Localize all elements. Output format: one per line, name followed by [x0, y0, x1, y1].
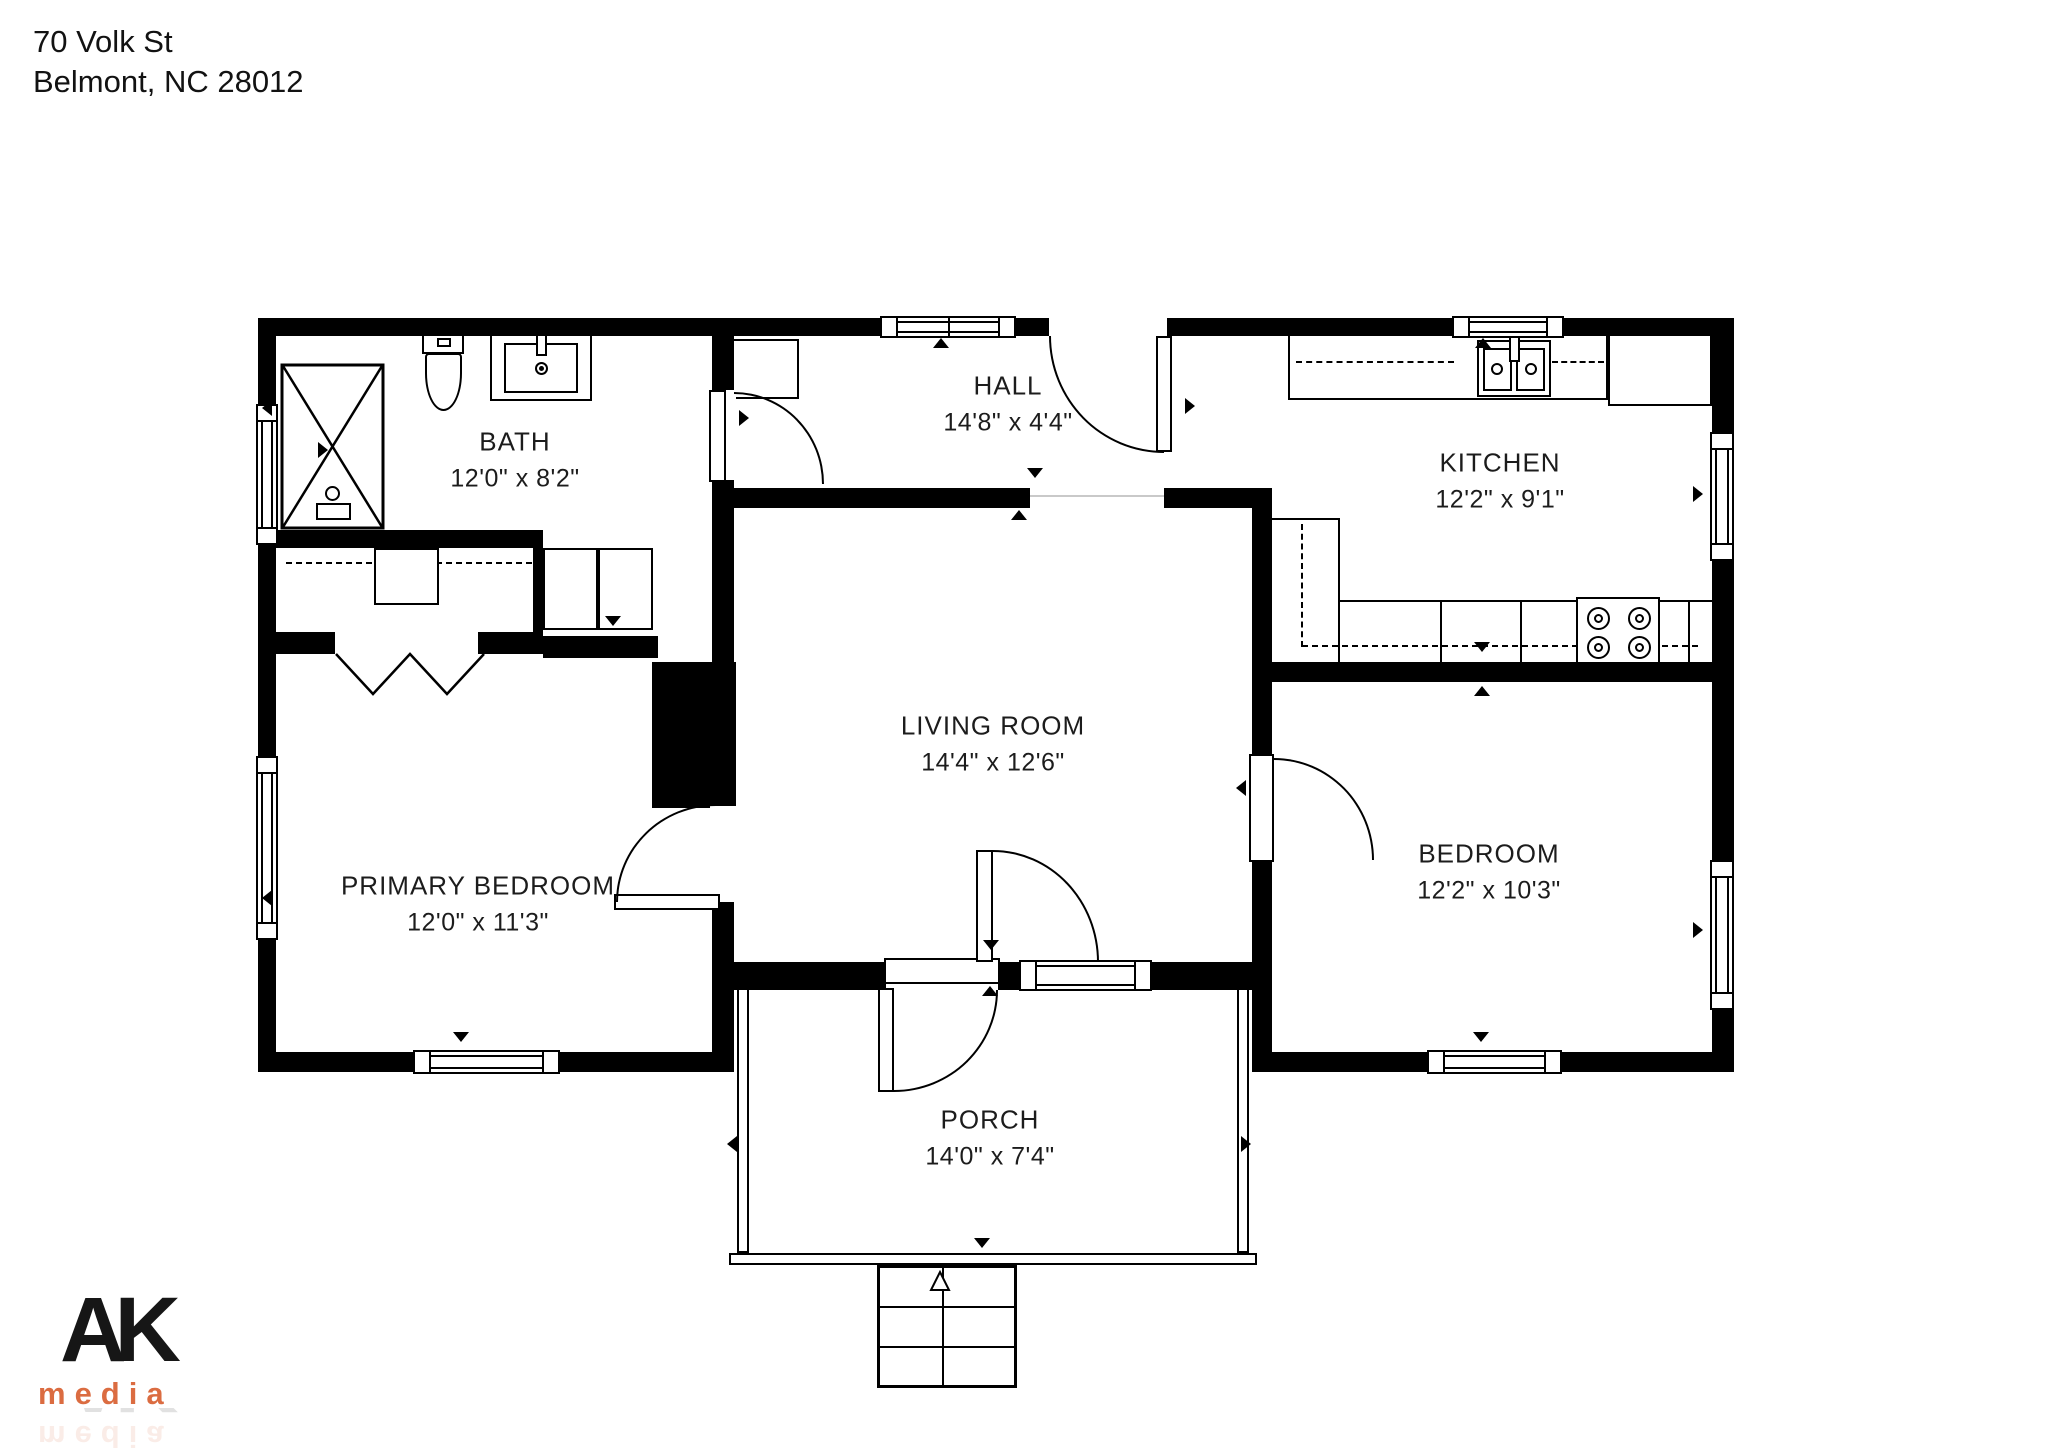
storm-door-leaf	[878, 988, 894, 1092]
toilet-button-icon	[437, 338, 451, 347]
marker-down	[1473, 1032, 1489, 1042]
room-dims: 14'4" x 12'6"	[901, 749, 1085, 778]
kitchen-counter-left	[1272, 518, 1340, 665]
room-label-kitchen: KITCHEN 12'2" x 9'1"	[1435, 448, 1564, 515]
marker-up	[982, 986, 998, 996]
bath-sink-drain-dot	[539, 366, 544, 371]
marker-left	[262, 890, 272, 906]
room-dims: 14'0" x 7'4"	[925, 1143, 1054, 1172]
ak-media-logo: AK media	[38, 1292, 268, 1412]
counter-dash	[1552, 361, 1604, 363]
room-label-porch: PORCH 14'0" x 7'4"	[925, 1105, 1054, 1172]
window-primary-bottom	[413, 1050, 560, 1074]
room-dims: 14'8" x 4'4"	[943, 409, 1072, 438]
wall-kitchen-bedroom	[1272, 662, 1712, 682]
bath-door-swing	[734, 392, 824, 484]
room-name: LIVING ROOM	[901, 711, 1085, 742]
opening-hall-living	[1030, 486, 1164, 510]
marker-left	[262, 400, 272, 416]
marker-down	[983, 940, 999, 950]
room-dims: 12'2" x 10'3"	[1417, 877, 1561, 906]
logo-ak-reflection: AK	[38, 1408, 268, 1418]
marker-up	[1011, 510, 1027, 520]
porch-rail-bottom	[729, 1253, 1257, 1265]
bifold-doors-icon	[330, 648, 490, 702]
window-primary-left	[256, 756, 278, 940]
kitchen-drain	[1525, 363, 1537, 375]
burner-center	[1635, 614, 1644, 623]
steps-up-arrow-icon	[928, 1270, 952, 1294]
step-tread	[880, 1306, 1014, 1308]
wall-primary-north-a	[258, 632, 335, 654]
window-kitchen-right	[1710, 432, 1734, 561]
marker-right	[1693, 486, 1703, 502]
marker-down	[1474, 642, 1490, 652]
wall-primary-north-b	[478, 632, 543, 654]
marker-up	[1475, 338, 1491, 348]
marker-left	[1236, 780, 1246, 796]
logo-reflection: media AK	[38, 1408, 268, 1454]
room-label-primary: PRIMARY BEDROOM 12'0" x 11'3"	[341, 871, 615, 938]
marker-up	[933, 338, 949, 348]
counter-dash	[1296, 361, 1454, 363]
bedroom-door-swing	[1274, 758, 1374, 860]
shower-valve-icon	[325, 486, 340, 501]
kitchen-counter-top	[1288, 336, 1608, 400]
room-label-living: LIVING ROOM 14'4" x 12'6"	[901, 711, 1085, 778]
window-bath-left	[256, 404, 278, 545]
window-bedroom-bottom	[1427, 1050, 1562, 1074]
marker-up	[1474, 686, 1490, 696]
fridge-icon	[1608, 331, 1712, 406]
marker-right	[1693, 922, 1703, 938]
cabinet	[543, 548, 598, 630]
marker-right	[1185, 398, 1195, 414]
room-label-bath: BATH 12'0" x 8'2"	[450, 427, 579, 494]
marker-right	[318, 442, 328, 458]
porch-rail-right	[1237, 988, 1249, 1253]
burner-center	[1635, 643, 1644, 652]
room-label-hall: HALL 14'8" x 4'4"	[943, 371, 1072, 438]
marker-left	[727, 1136, 737, 1152]
closet-shelf-unit	[374, 548, 439, 605]
marker-right	[1241, 1136, 1251, 1152]
marker-down	[1027, 468, 1043, 478]
wall-bath-south	[258, 530, 543, 548]
burner-center	[1594, 643, 1603, 652]
burner-center	[1594, 614, 1603, 623]
hall-cabinet	[732, 339, 799, 399]
room-dims: 12'2" x 9'1"	[1435, 486, 1564, 515]
front-door-swing-interior	[993, 850, 1099, 962]
chimney-mass	[652, 662, 736, 808]
bath-door-leaf	[709, 390, 726, 482]
floorplan-page: { "address": { "line1": "70 Volk St", "l…	[0, 0, 2048, 1447]
window-hall-top	[880, 316, 1016, 338]
room-dims: 12'0" x 8'2"	[450, 465, 579, 494]
toilet-bowl-icon	[425, 353, 462, 411]
window-kitchen-top	[1452, 316, 1564, 338]
floorplan: BATH 12'0" x 8'2" HALL 14'8" x 4'4" KITC…	[0, 0, 2048, 1447]
room-name: PRIMARY BEDROOM	[341, 871, 615, 902]
marker-right	[739, 410, 749, 426]
room-name: KITCHEN	[1435, 448, 1564, 479]
logo-ak-text: AK	[38, 1292, 268, 1368]
storm-door-swing	[894, 990, 998, 1092]
threshold-line	[1030, 495, 1164, 497]
stove-icon	[1576, 597, 1660, 668]
room-name: BATH	[450, 427, 579, 458]
room-name: HALL	[943, 371, 1072, 402]
bedroom-door-leaf	[1249, 754, 1274, 862]
marker-down	[974, 1238, 990, 1248]
room-name: PORCH	[925, 1105, 1054, 1136]
logo-media-text: media	[38, 1376, 268, 1412]
counter-divider	[1688, 600, 1690, 665]
wall-nook-south	[543, 636, 658, 658]
marker-down	[453, 1032, 469, 1042]
room-label-bedroom: BEDROOM 12'2" x 10'3"	[1417, 839, 1561, 906]
window-living-front	[1019, 960, 1152, 991]
step-tread	[880, 1346, 1014, 1348]
porch-rail-left	[737, 988, 749, 1253]
wall-hall-south-a	[712, 488, 1030, 508]
window-bedroom-right	[1710, 860, 1734, 1010]
marker-down	[605, 616, 621, 626]
room-dims: 12'0" x 11'3"	[341, 909, 615, 938]
kitchen-drain	[1491, 363, 1503, 375]
primary-door-swing	[616, 804, 716, 902]
opening-back-door	[1049, 316, 1167, 338]
room-name: BEDROOM	[1417, 839, 1561, 870]
counter-divider	[1520, 600, 1522, 665]
shower-faucet-icon	[316, 503, 351, 520]
counter-dash	[1301, 524, 1303, 647]
counter-divider	[1440, 600, 1442, 665]
